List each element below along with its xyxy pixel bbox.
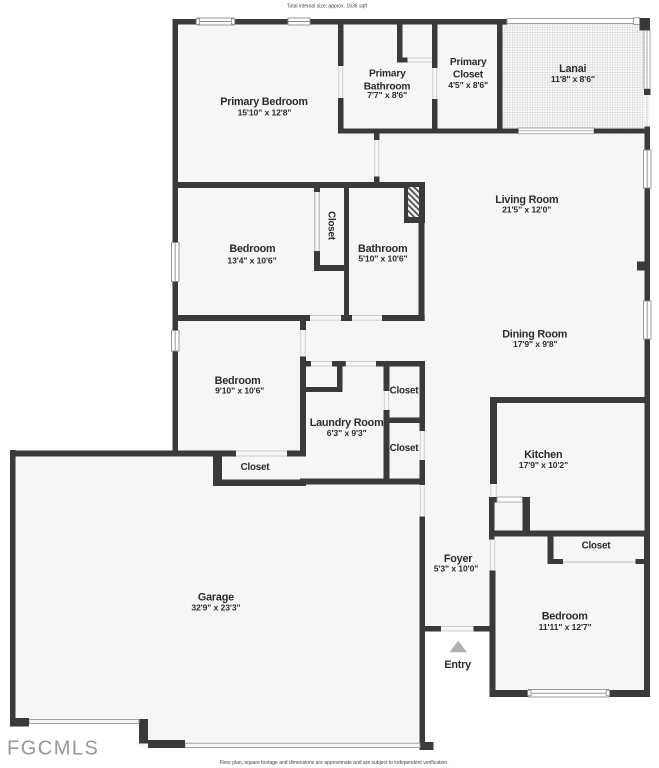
svg-text:21'5" x 12'0": 21'5" x 12'0" xyxy=(502,204,551,214)
svg-text:Bedroom: Bedroom xyxy=(229,243,275,255)
svg-text:7'7" x 8'6": 7'7" x 8'6" xyxy=(367,90,407,100)
svg-text:Closet: Closet xyxy=(390,386,420,397)
svg-text:17'9" x 10'2": 17'9" x 10'2" xyxy=(519,460,568,470)
svg-text:15'10" x 12'8": 15'10" x 12'8" xyxy=(238,108,292,118)
svg-text:Floor plan, square footage and: Floor plan, square footage and dimension… xyxy=(219,760,448,766)
svg-text:Closet: Closet xyxy=(453,70,484,81)
svg-text:FGCMLS: FGCMLS xyxy=(7,738,99,760)
svg-text:32'9" x 23'3": 32'9" x 23'3" xyxy=(191,603,240,613)
svg-text:Primary Bedroom: Primary Bedroom xyxy=(220,96,308,108)
svg-text:Laundry Room: Laundry Room xyxy=(310,417,384,429)
svg-text:6'3" x 9'3": 6'3" x 9'3" xyxy=(327,428,367,438)
svg-text:Closet: Closet xyxy=(582,541,612,552)
svg-text:Closet: Closet xyxy=(390,443,420,454)
svg-text:Entry: Entry xyxy=(444,659,471,671)
svg-text:5'3" x 10'0": 5'3" x 10'0" xyxy=(434,563,479,573)
svg-text:Primary: Primary xyxy=(369,69,406,80)
svg-text:11'8" x 8'6": 11'8" x 8'6" xyxy=(551,74,595,84)
svg-text:13'4" x 10'6": 13'4" x 10'6" xyxy=(227,255,276,265)
svg-text:Primary: Primary xyxy=(450,57,487,68)
svg-text:9'10" x 10'6": 9'10" x 10'6" xyxy=(215,386,264,396)
svg-text:Total internal size: approx. 1: Total internal size: approx. 1636 sqft xyxy=(287,4,368,10)
svg-text:Bedroom: Bedroom xyxy=(542,611,588,623)
svg-text:4'5" x 8'6": 4'5" x 8'6" xyxy=(448,80,488,90)
svg-text:11'11" x 12'7": 11'11" x 12'7" xyxy=(539,622,592,632)
svg-text:Closet: Closet xyxy=(326,211,337,241)
svg-text:Closet: Closet xyxy=(241,462,271,473)
svg-text:5'10" x 10'6": 5'10" x 10'6" xyxy=(358,254,407,264)
svg-text:17'9" x 9'8": 17'9" x 9'8" xyxy=(513,339,558,349)
